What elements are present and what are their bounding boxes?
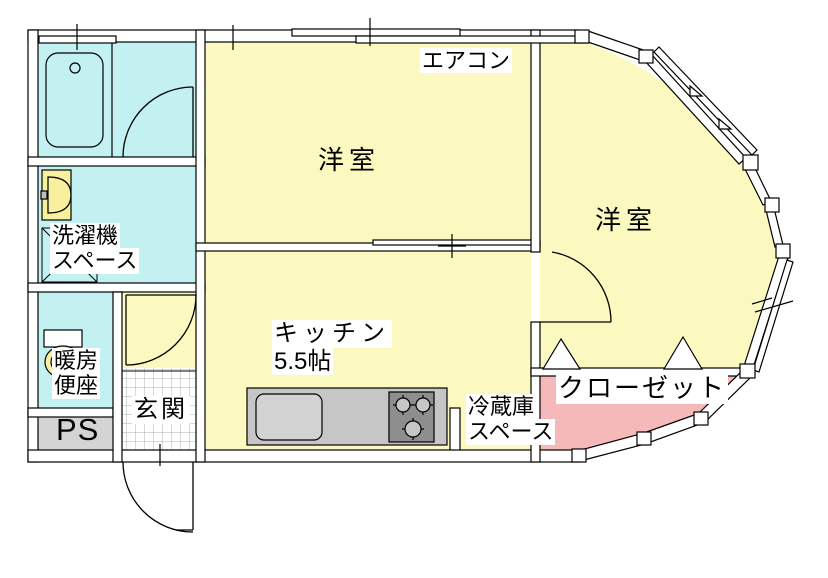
- label-aircon: エアコン: [420, 48, 512, 73]
- wall-post: [740, 364, 755, 378]
- wall-toilet-entrance: [113, 292, 122, 462]
- wall-left: [28, 30, 38, 462]
- window-room1-pane2: [356, 36, 588, 43]
- washbasin-tap-icon: [41, 191, 47, 199]
- label-kitchen: キッチン 5.5帖: [272, 320, 392, 375]
- label-pipe-space: PS: [54, 412, 101, 448]
- hall-floor: [122, 292, 196, 370]
- sink-icon: [256, 394, 322, 440]
- wall-bath-washroom: [28, 157, 205, 166]
- label-western-room-left: 洋室: [316, 146, 382, 176]
- fridge-wall-stub: [450, 408, 460, 452]
- entrance-door-swing: [123, 462, 193, 532]
- label-western-room-right: 洋室: [593, 206, 659, 236]
- wall-post: [776, 244, 790, 258]
- bathtub-icon: [46, 53, 103, 147]
- stove-icon: [389, 392, 434, 442]
- sliding-door-pane: [373, 240, 540, 245]
- label-washing-machine-space: 洗濯機 スペース: [50, 223, 139, 274]
- window-room1-pane1: [292, 29, 460, 36]
- wall-post: [572, 449, 586, 462]
- label-fridge-space: 冷蔵庫 スペース: [466, 394, 555, 445]
- label-entrance: 玄関: [132, 396, 190, 424]
- kitchen-counter: [247, 388, 447, 445]
- floor-plan-canvas: [0, 0, 828, 578]
- wall-post: [639, 50, 653, 63]
- label-closet: クローゼット: [556, 374, 728, 404]
- label-heated-toilet-seat: 暖房 便座: [52, 348, 100, 399]
- wall-center-upper: [531, 30, 540, 252]
- wall-post: [765, 198, 779, 212]
- wall-bottom: [28, 450, 579, 462]
- wall-post: [694, 412, 708, 425]
- floor-plan: エアコン 洋室 洋室 キッチン 5.5帖 洗濯機 スペース 暖房 便座 PS 玄…: [0, 0, 828, 578]
- wall-washroom-hall: [28, 283, 205, 292]
- wall-post: [575, 30, 589, 43]
- wall-post: [637, 432, 651, 445]
- wall-post: [743, 155, 758, 170]
